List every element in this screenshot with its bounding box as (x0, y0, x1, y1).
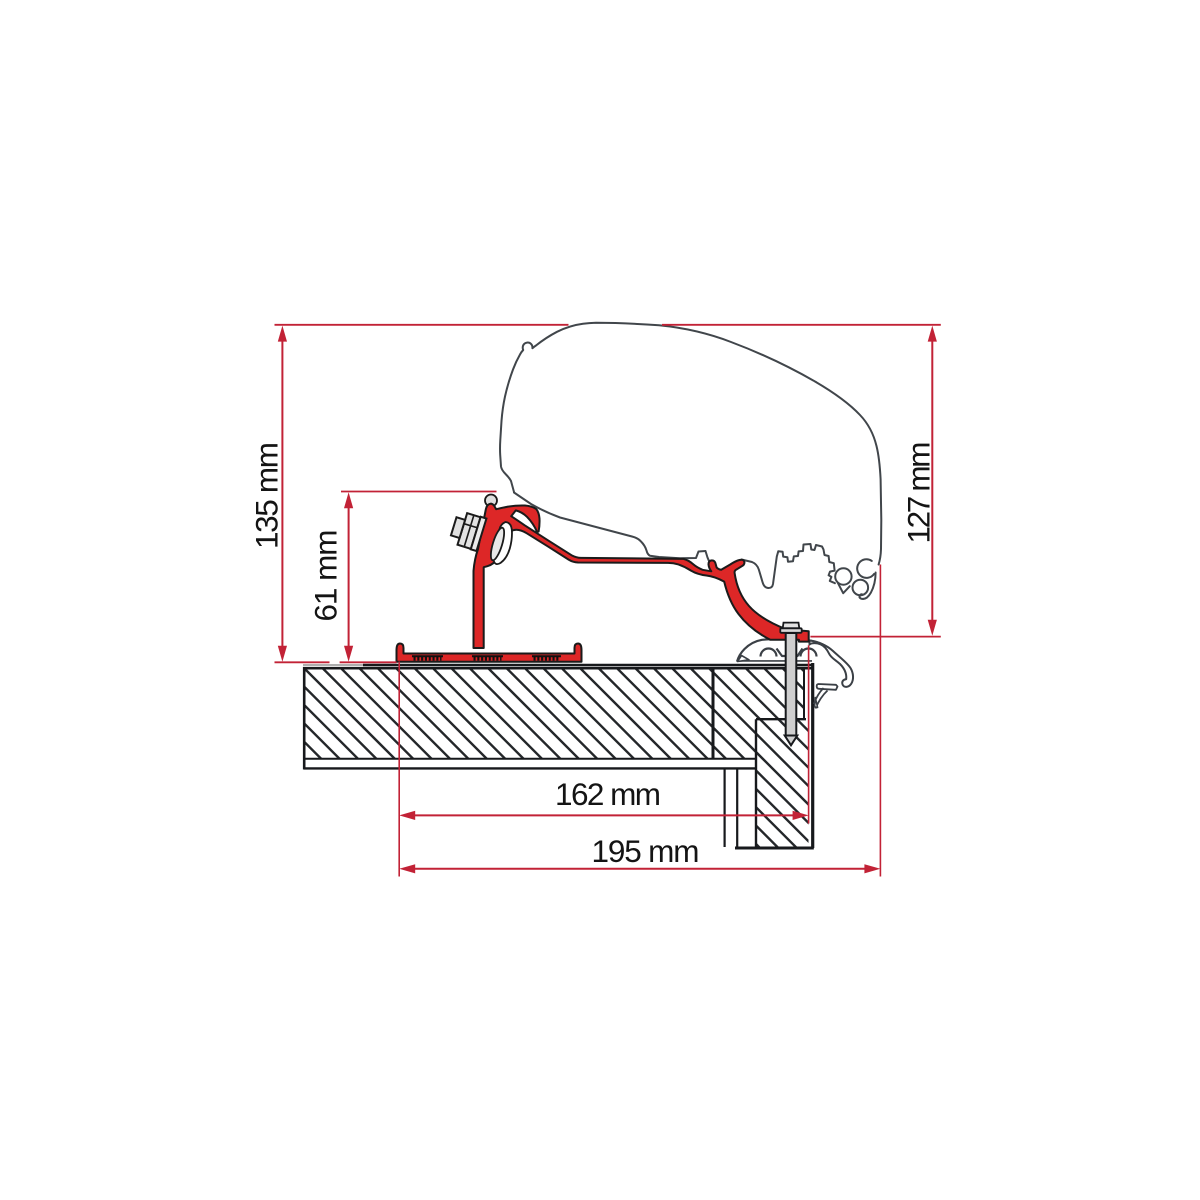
svg-text:162 mm: 162 mm (555, 776, 661, 812)
svg-text:135 mm: 135 mm (249, 442, 285, 549)
svg-text:127 mm: 127 mm (901, 442, 937, 544)
svg-text:195 mm: 195 mm (592, 833, 700, 869)
svg-text:61 mm: 61 mm (308, 530, 344, 622)
